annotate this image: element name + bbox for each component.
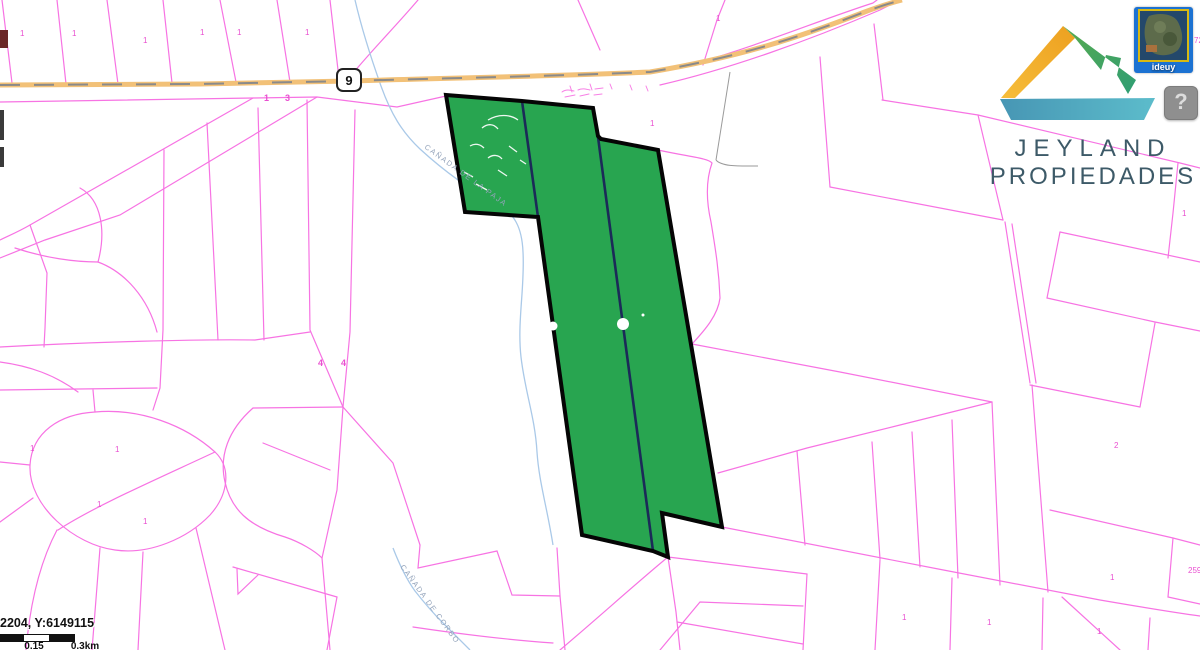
minimap-widget[interactable]: ideuy [1134, 7, 1193, 73]
minimap-satellite-thumbnail[interactable] [1138, 9, 1189, 62]
small-parcel-marks [562, 84, 648, 97]
help-button[interactable]: ? [1164, 86, 1198, 120]
parcel-number-label: 1 [30, 444, 35, 453]
parcel-number-label: 1 [72, 29, 77, 38]
parcel-number-label: 3 [285, 93, 290, 103]
map-application: 9 CAÑADA DE LA PAJA CAÑADA DE CORBO 1111… [0, 0, 1200, 650]
parcel-number-label: 1 [237, 28, 242, 37]
track-lines [716, 72, 758, 166]
scale-mid-label: 0.15 [14, 641, 54, 650]
question-mark-icon: ? [1174, 89, 1187, 114]
property-point-marker [642, 314, 645, 317]
highway [0, 0, 902, 85]
stream-label: CAÑADA DE CORBO [398, 563, 461, 646]
property-point-marker [549, 322, 558, 331]
parcel-number-label: 2 [1114, 441, 1119, 450]
parcel-number-label: 1 [650, 119, 655, 128]
route-number: 9 [345, 73, 352, 88]
parcel-number-label: 1 [200, 28, 205, 37]
parcel-number-label: 1 [264, 93, 269, 103]
parcel-number-label: 1 [902, 613, 907, 622]
property-point-marker [617, 318, 629, 330]
parcel-number-label: 4 [318, 358, 323, 368]
parcel-number-label: 259 [1188, 566, 1200, 575]
parcel-number-label: 1 [305, 28, 310, 37]
parcel-number-label: 1 [987, 618, 992, 627]
minimap-country-shape [1140, 11, 1187, 60]
parcel-number-label: 1 [143, 517, 148, 526]
parcel-number-label: 1 [716, 14, 721, 23]
route-shield: 9 [337, 69, 361, 91]
edge-symbols [0, 30, 8, 167]
parcel-number-label: 4 [341, 358, 346, 368]
parcel-number-label: 1 [1110, 573, 1115, 582]
parcel-number-label: 1 [20, 29, 25, 38]
parcel-number-label: 1 [143, 36, 148, 45]
parcel-number-label: 1 [1182, 209, 1187, 218]
brand-name-line2: PROPIEDADES [986, 163, 1200, 191]
parcel-number-label: 1 [115, 445, 120, 454]
scale-end-label: 0.3km [62, 641, 108, 650]
brand-name-line1: JEYLAND [986, 135, 1200, 163]
coordinate-readout: 2204, Y:6149115 [0, 616, 94, 630]
highlighted-property[interactable] [446, 95, 722, 557]
parcel-number-label: 1 [97, 500, 102, 509]
parcel-number-label: 1 [1097, 627, 1102, 636]
